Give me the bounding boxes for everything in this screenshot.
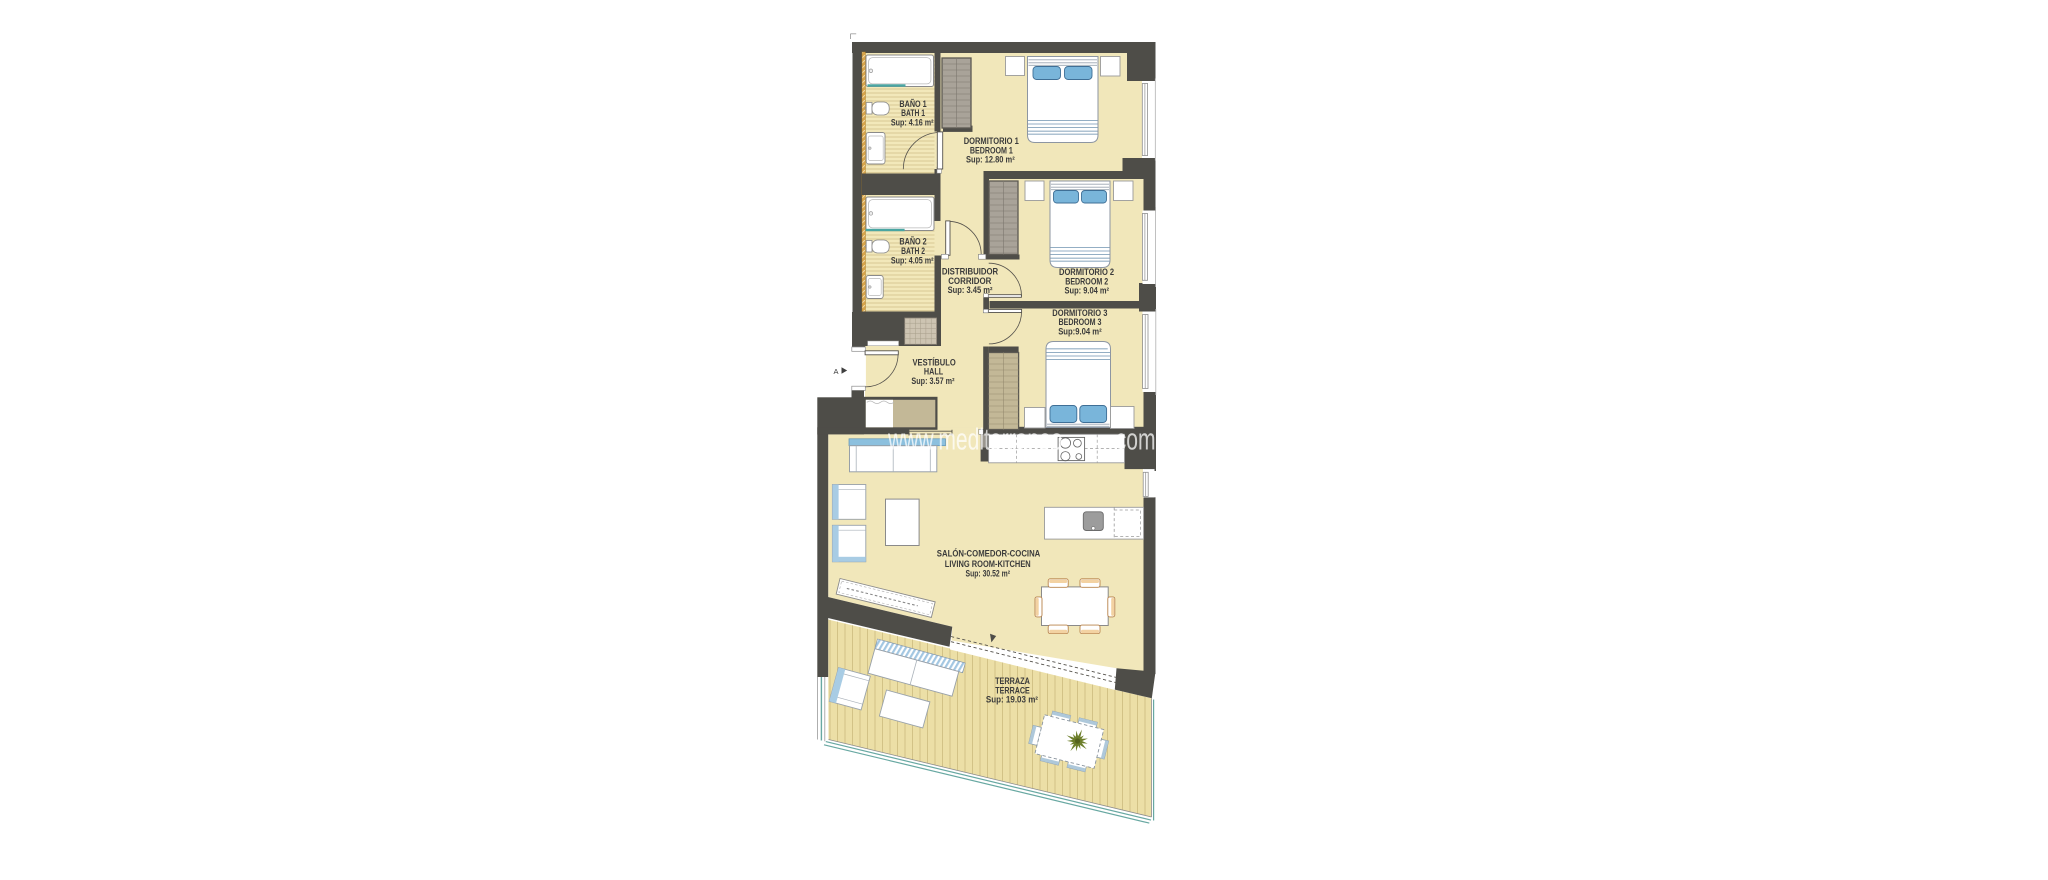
svg-text:Sup: 3.45 m²: Sup: 3.45 m² [948, 285, 993, 295]
svg-text:SALÓN-COMEDOR-COCINA: SALÓN-COMEDOR-COCINA [937, 547, 1041, 558]
svg-text:www.mediterraneo: www.mediterraneo [887, 421, 1062, 456]
svg-text:Sup: 12.80 m²: Sup: 12.80 m² [966, 155, 1015, 165]
svg-text:Sup: 9.04 m²: Sup: 9.04 m² [1065, 286, 1110, 296]
svg-text:Sup:9.04 m²: Sup:9.04 m² [1058, 327, 1102, 337]
svg-text:Sup: 30.52 m²: Sup: 30.52 m² [966, 568, 1011, 578]
svg-text:LIVING ROOM-KITCHEN: LIVING ROOM-KITCHEN [945, 559, 1031, 569]
svg-text:Sup: 4.05 m²: Sup: 4.05 m² [891, 255, 934, 265]
svg-text:Sup: 3.57 m²: Sup: 3.57 m² [911, 376, 954, 386]
svg-text:Sup: 19.03 m²: Sup: 19.03 m² [986, 695, 1038, 705]
svg-text:com: com [1116, 421, 1156, 456]
svg-text:A: A [834, 367, 839, 376]
svg-text:Sup: 4.16 m²: Sup: 4.16 m² [891, 118, 934, 128]
